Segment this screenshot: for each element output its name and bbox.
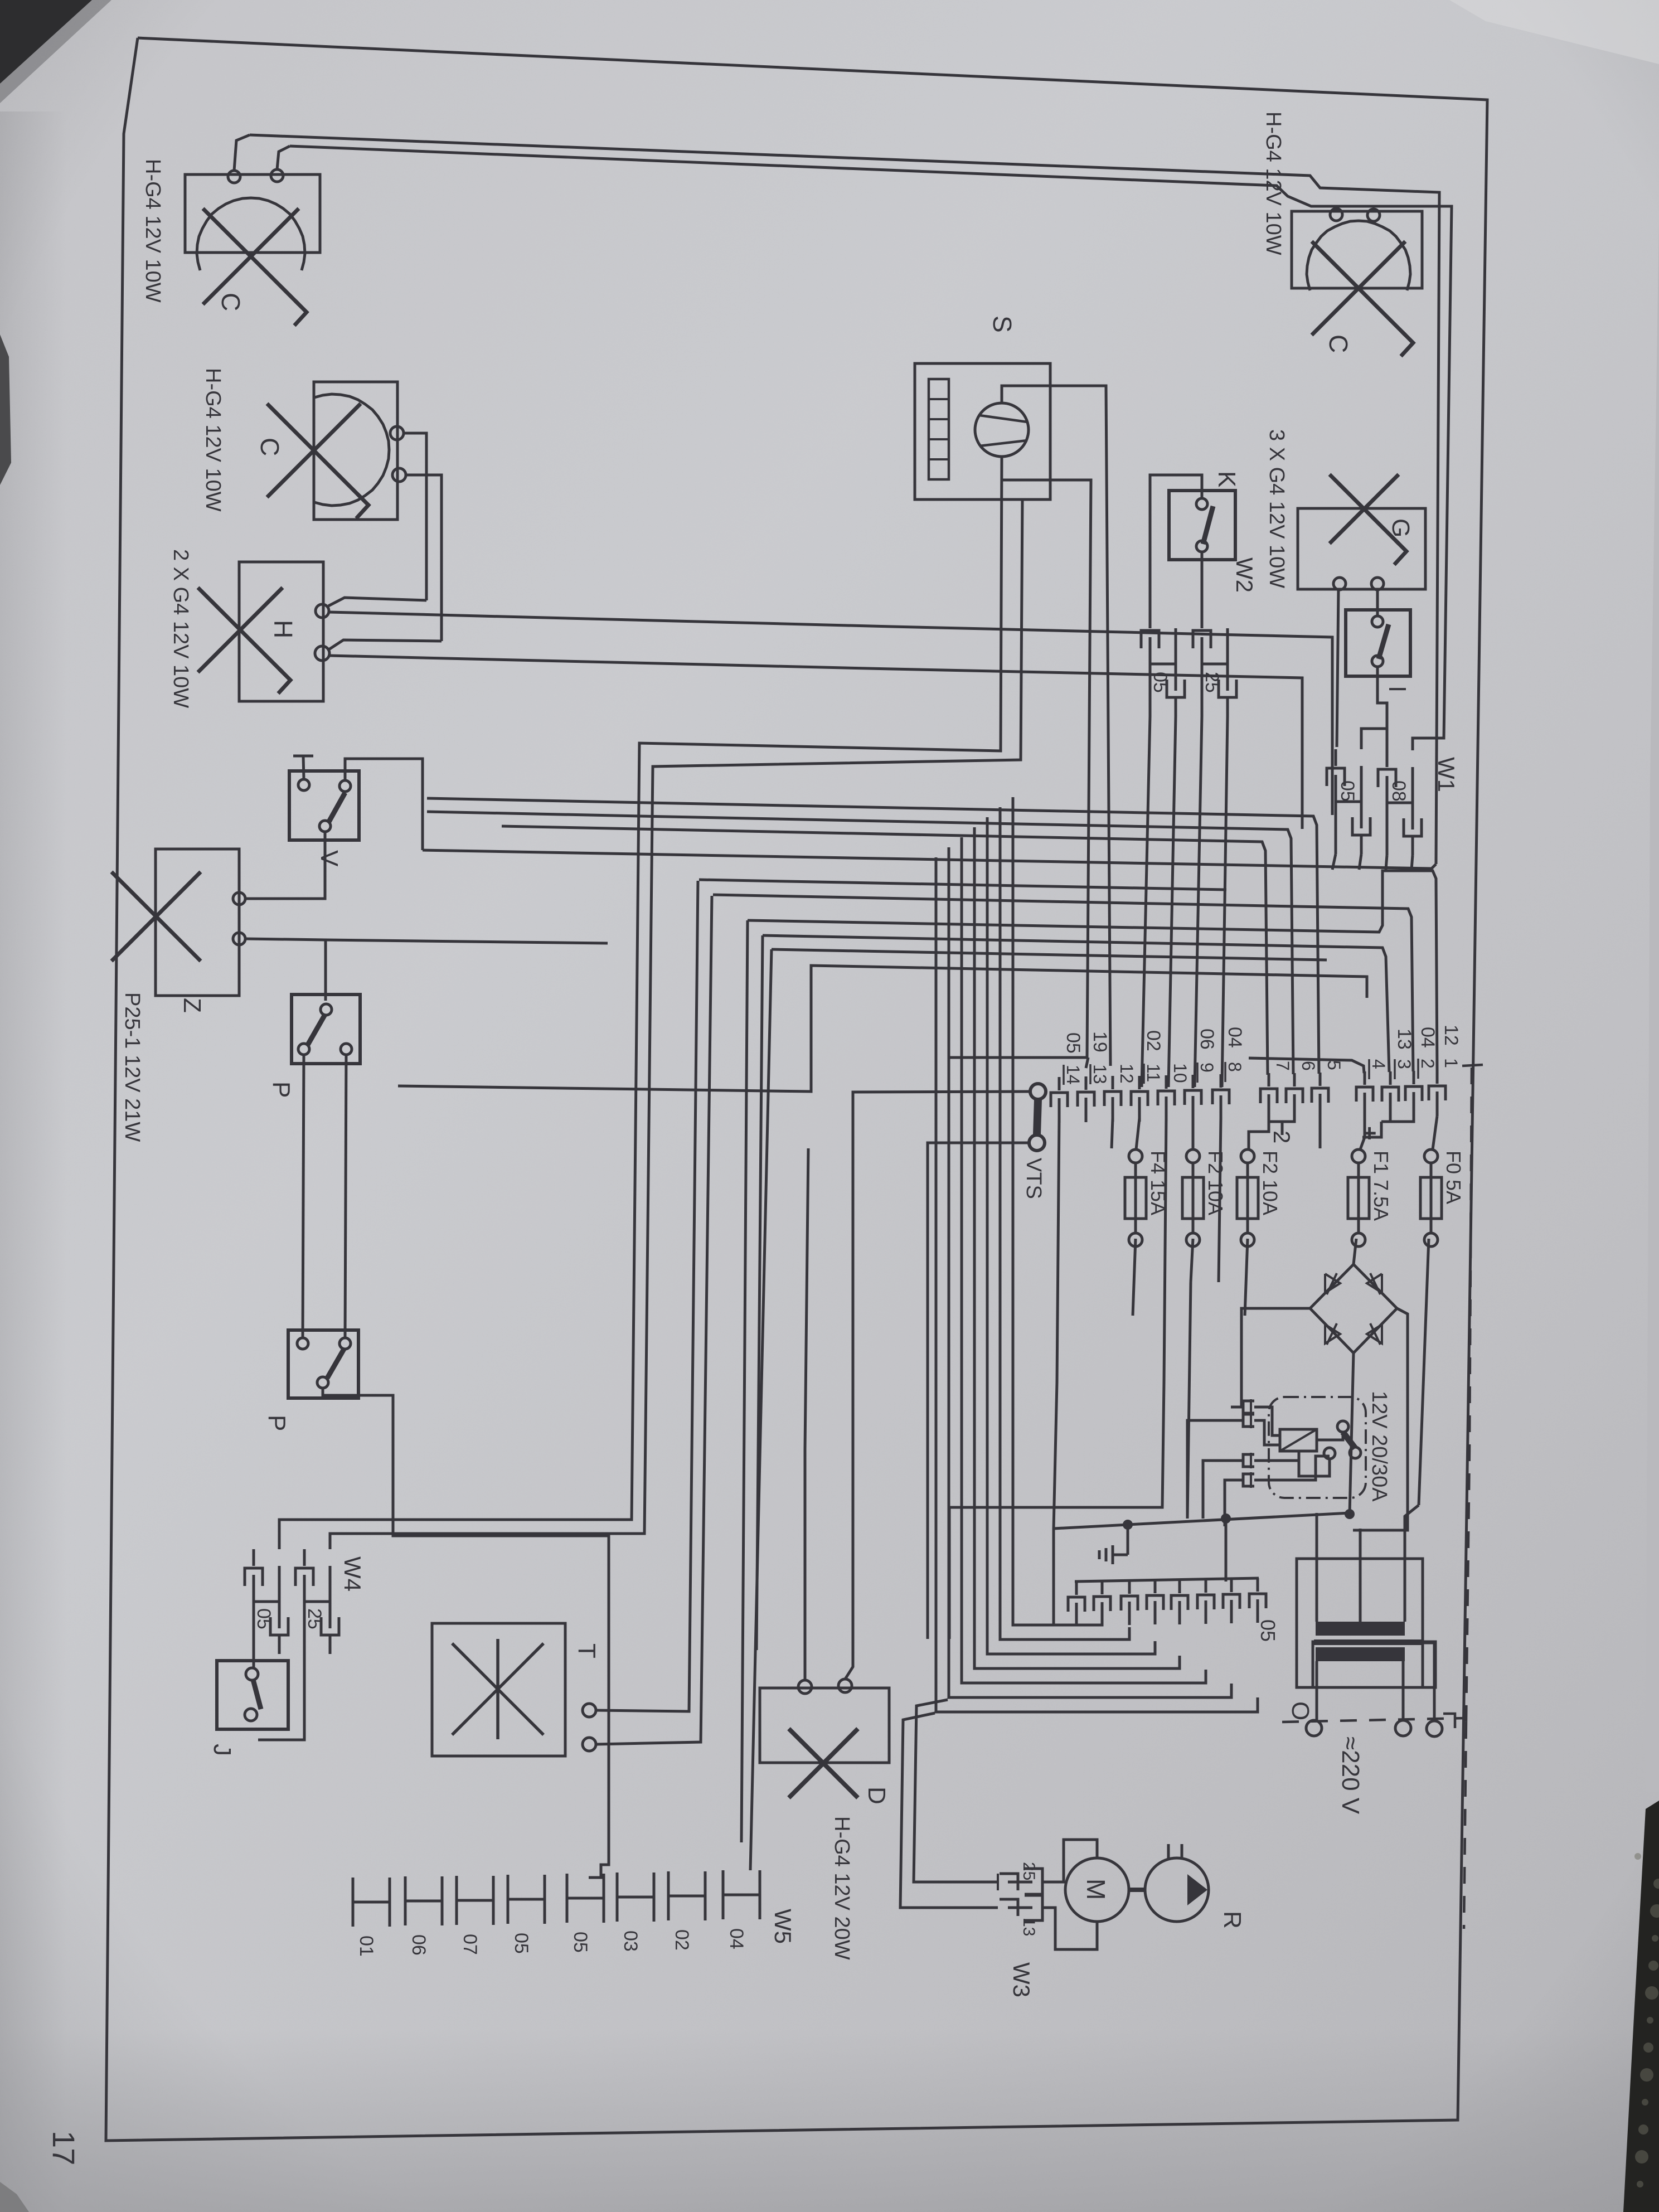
svg-text:06: 06 [408,1934,429,1956]
svg-text:2: 2 [1269,1131,1295,1143]
svg-text:P: P [263,1415,290,1431]
svg-text:17: 17 [46,2131,81,2165]
svg-text:05: 05 [253,1608,274,1629]
svg-text:W4: W4 [339,1556,366,1592]
svg-text:F2 10A: F2 10A [1259,1151,1282,1215]
svg-text:2 X G4 12V 10W: 2 X G4 12V 10W [169,549,192,708]
svg-text:02: 02 [671,1929,692,1951]
svg-text:12: 12 [1440,1025,1462,1046]
svg-text:O: O [1287,1701,1314,1720]
svg-text:5: 5 [1324,1060,1344,1070]
svg-text:Z: Z [178,998,206,1013]
svg-text:F0 5A: F0 5A [1442,1151,1465,1204]
svg-text:12V 20/30A: 12V 20/30A [1367,1391,1391,1502]
svg-text:25: 25 [1201,672,1223,693]
svg-text:6: 6 [1298,1061,1318,1071]
svg-text:07: 07 [459,1934,481,1955]
svg-text:G: G [1387,518,1414,537]
svg-text:H-G4 12V 10W: H-G4 12V 10W [1262,111,1285,255]
svg-text:7: 7 [1273,1061,1293,1071]
svg-text:F1 7.5A: F1 7.5A [1370,1151,1393,1221]
svg-text:V: V [316,850,343,867]
svg-text:R: R [1219,1911,1246,1929]
svg-text:9: 9 [1197,1063,1217,1073]
svg-text:3 X G4 12V 10W: 3 X G4 12V 10W [1265,429,1288,588]
svg-text:10: 10 [1170,1063,1190,1083]
svg-text:C: C [255,438,284,456]
svg-text:1: 1 [1441,1058,1461,1068]
svg-text:12: 12 [1117,1064,1137,1084]
svg-text:VTS: VTS [1022,1158,1045,1199]
svg-text:K: K [1213,471,1240,487]
svg-text:C: C [1324,334,1353,353]
svg-text:13: 13 [1090,1064,1110,1084]
svg-text:14: 14 [1063,1065,1083,1085]
svg-text:≈220 V: ≈220 V [1337,1736,1364,1815]
svg-text:P: P [268,1081,295,1098]
svg-text:11: 11 [1143,1064,1163,1082]
svg-text:04: 04 [1417,1027,1438,1048]
svg-text:D: D [863,1787,890,1804]
svg-text:06: 06 [1196,1029,1217,1050]
svg-text:W5: W5 [770,1909,796,1944]
svg-text:W3: W3 [1008,1962,1035,1997]
svg-text:S: S [988,316,1017,333]
svg-text:J: J [208,1744,236,1756]
svg-text:I: I [1384,686,1411,692]
svg-text:+: + [1356,1126,1383,1141]
svg-text:25: 25 [1020,1862,1038,1880]
svg-text:4: 4 [1369,1059,1389,1069]
svg-text:P25-1 12V 21W: P25-1 12V 21W [120,992,144,1142]
svg-text:T: T [573,1643,600,1658]
svg-text:H-G4 12V 10W: H-G4 12V 10W [141,159,164,303]
svg-text:13: 13 [1020,1918,1038,1936]
svg-text:05: 05 [1257,1619,1279,1642]
svg-text:03: 03 [620,1930,641,1952]
svg-text:W1: W1 [1433,757,1459,792]
svg-text:04: 04 [726,1928,747,1949]
svg-text:05: 05 [1149,672,1171,693]
svg-text:H-G4 12V 20W: H-G4 12V 20W [830,1816,853,1960]
svg-text:25: 25 [304,1608,325,1629]
svg-text:05: 05 [1337,780,1358,802]
svg-text:13: 13 [1394,1029,1415,1050]
svg-text:8: 8 [1225,1062,1245,1072]
svg-text:05: 05 [511,1933,532,1954]
svg-text:02: 02 [1143,1030,1164,1051]
svg-text:19: 19 [1089,1031,1110,1052]
svg-text:C: C [216,293,245,311]
svg-text:05: 05 [570,1932,591,1953]
svg-text:F2 10A: F2 10A [1204,1151,1227,1215]
svg-text:05: 05 [1063,1032,1084,1054]
svg-text:01: 01 [356,1935,377,1957]
svg-text:04: 04 [1224,1027,1245,1048]
svg-text:H-G4 12V 10W: H-G4 12V 10W [201,368,225,512]
svg-text:H: H [269,620,298,638]
svg-text:M: M [1081,1879,1110,1900]
svg-text:W2: W2 [1231,557,1258,593]
svg-text:08: 08 [1388,780,1409,802]
svg-text:3: 3 [1394,1059,1414,1069]
svg-text:2: 2 [1418,1059,1438,1069]
